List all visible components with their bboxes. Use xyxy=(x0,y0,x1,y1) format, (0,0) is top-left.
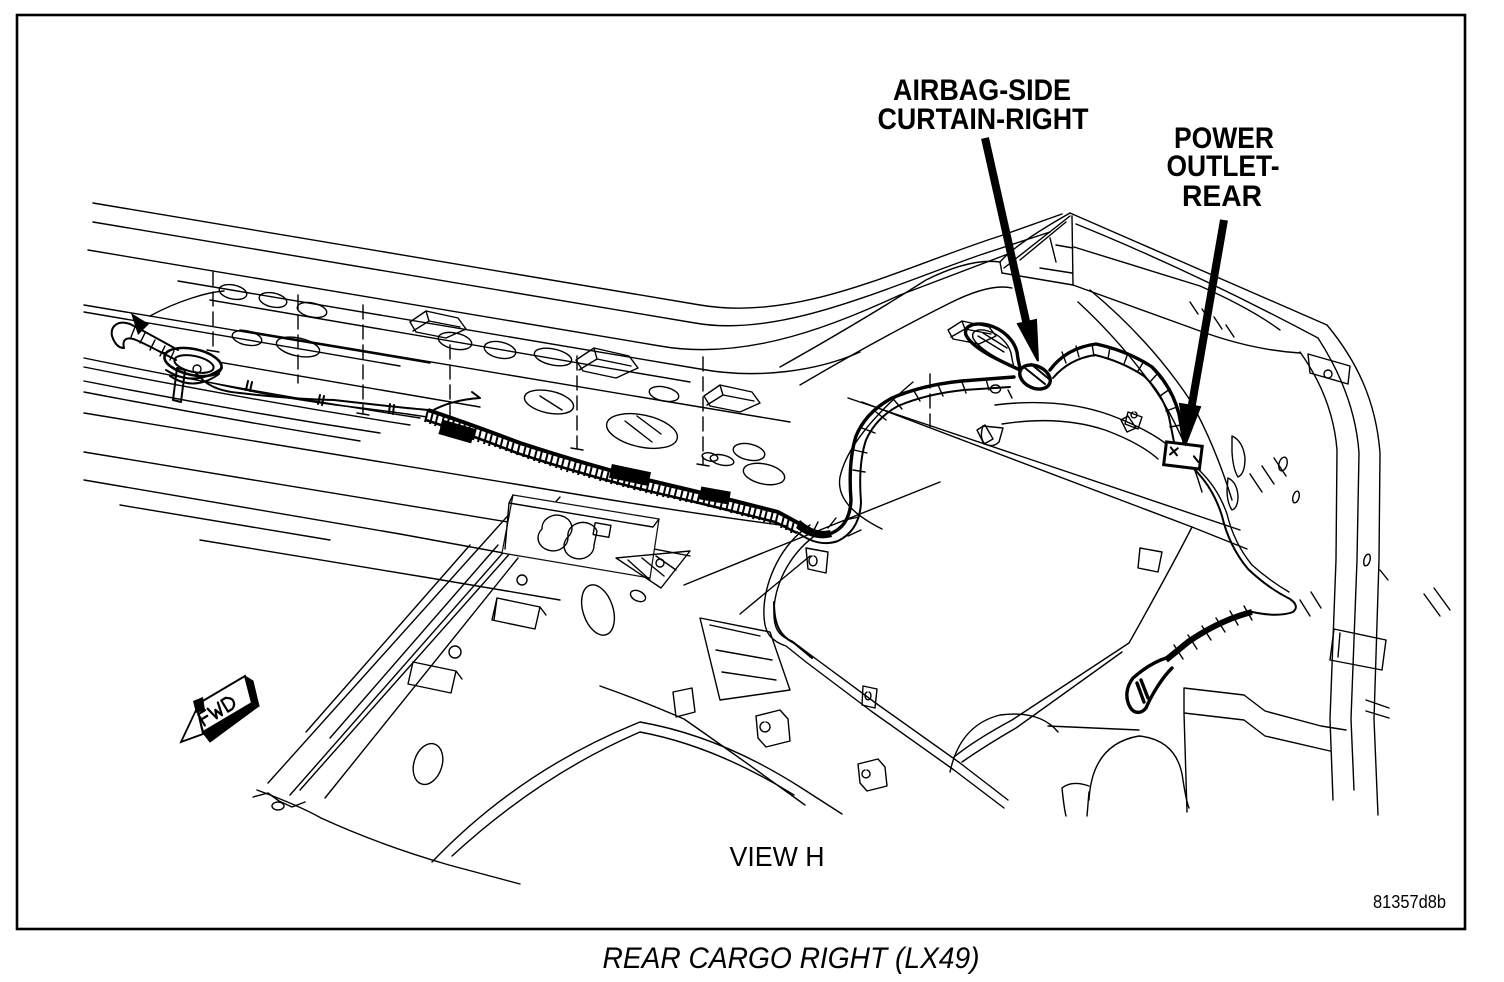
svg-text:OUTLET-: OUTLET- xyxy=(1167,150,1280,183)
svg-text:CURTAIN-RIGHT: CURTAIN-RIGHT xyxy=(878,103,1089,136)
svg-text:REAR CARGO RIGHT (LX49): REAR CARGO RIGHT (LX49) xyxy=(603,942,980,975)
svg-text:REAR: REAR xyxy=(1182,180,1262,213)
svg-text:VIEW H: VIEW H xyxy=(730,841,825,872)
svg-text:81357d8b: 81357d8b xyxy=(1373,892,1446,912)
